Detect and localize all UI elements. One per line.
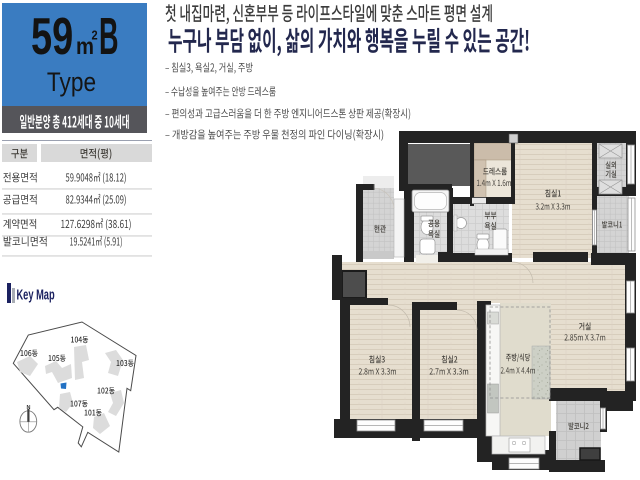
svg-text:N: N — [27, 405, 31, 411]
svg-text:59: 59 — [31, 7, 73, 65]
svg-text:Type: Type — [47, 67, 96, 97]
svg-text:2: 2 — [92, 28, 98, 43]
svg-text:Key Map: Key Map — [17, 286, 55, 303]
svg-text:B: B — [99, 6, 119, 65]
